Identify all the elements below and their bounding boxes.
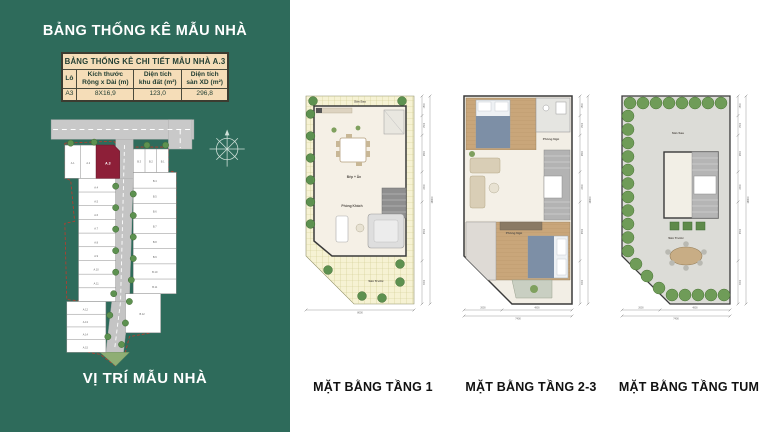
dim-label: 2600	[480, 308, 486, 310]
lot-label: B.11	[152, 286, 158, 289]
spec-table-title: BẢNG THỐNG KÊ CHI TIẾT MẪU NHÀ A.3	[62, 53, 229, 70]
tree-icon	[630, 258, 642, 270]
dimension-side: 15001500280023004500330016900	[421, 95, 434, 306]
dim-label: 4800	[534, 308, 540, 310]
spec-table-header-row: Lô Kích thước Rộng x Dài (m) Diện tích k…	[62, 70, 229, 89]
stairs	[382, 188, 406, 218]
sidebar-title: BẢNG THỐNG KÊ MẪU NHÀ	[43, 23, 247, 39]
tree-icon	[622, 164, 634, 176]
compass-icon	[210, 129, 245, 166]
tree-icon	[113, 183, 119, 189]
room-label-san-truoc: Sân Trước	[668, 236, 684, 240]
tree-icon	[705, 289, 717, 301]
tree-icon	[126, 298, 132, 304]
tree-icon	[324, 266, 333, 275]
lot-label: A.8	[94, 241, 98, 244]
lot-label: B.2	[149, 160, 153, 163]
spec-table-row: A3 8X16,9 123,0 296,8	[62, 89, 229, 101]
plan-2-3-caption: MẶT BẰNG TẦNG 2-3	[465, 380, 596, 394]
floor-plan-tum-drawing: Sân Sau Sân Trước 1500150028002300450033…	[614, 88, 764, 328]
dim-label: 2800	[424, 150, 426, 156]
tree-icon	[715, 97, 727, 109]
tree-icon	[666, 289, 678, 301]
tree-icon	[162, 142, 168, 148]
tree-icon	[306, 220, 315, 229]
tree-icon	[622, 232, 634, 244]
dim-label: 1500	[740, 103, 742, 109]
tree-icon	[91, 139, 97, 145]
tree-icon	[130, 255, 136, 261]
room-label-san-truoc: Sân Trước	[368, 279, 383, 283]
tree-icon	[622, 124, 634, 136]
lot-label: A.7	[94, 227, 98, 230]
dim-total-label: 8000	[357, 311, 363, 314]
tree-icon	[653, 282, 665, 294]
dim-total-label: 16900	[747, 196, 750, 204]
tree-icon	[306, 132, 315, 141]
lot-label: A.15	[83, 346, 89, 349]
tree-icon	[641, 270, 653, 282]
tree-icon	[396, 260, 405, 269]
col-dien-tich-khu-dat: Diện tích khu đất (m²)	[134, 70, 182, 89]
dim-label: 2300	[424, 184, 426, 190]
tree-icon	[650, 97, 662, 109]
tree-icon	[679, 289, 691, 301]
dim-total-label: 16900	[431, 196, 434, 204]
col-kich-thuoc: Kích thước Rộng x Dài (m)	[77, 70, 134, 89]
dim-label: 4800	[692, 308, 698, 310]
dim-label: 3300	[740, 279, 742, 285]
tree-icon	[309, 97, 318, 106]
lot-label: B.10	[152, 271, 158, 274]
dimension-bottom: 260048007400	[463, 308, 574, 321]
lot-label: A.4	[94, 186, 98, 189]
dim-total-label: 7400	[673, 317, 679, 320]
tree-icon	[306, 154, 315, 163]
lot-block-b	[125, 149, 176, 333]
tree-icon	[68, 140, 74, 146]
lot-label: A.13	[83, 321, 89, 324]
bathroom-bottom	[466, 222, 496, 280]
lot-label: B.7	[153, 225, 157, 228]
dim-label: 3300	[424, 279, 426, 285]
tree-icon	[105, 333, 111, 339]
dim-label: 4500	[582, 228, 584, 234]
dim-label: 1500	[582, 122, 584, 128]
dim-total-label: 16900	[589, 196, 592, 204]
dimension-bottom: 8000	[305, 309, 416, 315]
dimension-bottom: 260048007400	[621, 308, 732, 321]
tree-icon	[624, 97, 636, 109]
room-label-phong-khach: Phòng Khách	[341, 204, 362, 208]
lot-label: A.10	[94, 268, 100, 271]
cell-size: 8X16,9	[77, 89, 134, 101]
floor-plan-tum: Sân Sau Sân Trước 1500150028002300450033…	[610, 0, 768, 432]
floor-plan-2-3-drawing: Phòng Ngủ Phòng Ngủ 15001500280023004500…	[456, 88, 606, 328]
tree-icon	[378, 294, 387, 303]
dim-label: 4500	[424, 228, 426, 234]
floor-plan-1: Sân Sau Bếp + Ăn Phòng Khách Sân Trước 1…	[294, 0, 452, 432]
room-label-bep-an: Bếp + Ăn	[347, 174, 361, 179]
dim-label: 3300	[582, 279, 584, 285]
dimension-side: 15001500280023004500330016900	[737, 95, 750, 306]
dim-label: 4500	[740, 228, 742, 234]
lot-label: B.5	[153, 195, 157, 198]
tree-icon	[622, 178, 634, 190]
dim-label: 2600	[638, 308, 644, 310]
lot-label: A.2	[86, 162, 90, 165]
col-lo: Lô	[62, 70, 77, 89]
dim-label: 1500	[424, 122, 426, 128]
lot-label: B.9	[153, 256, 157, 259]
lot-label: A.1	[71, 162, 75, 165]
tree-icon	[718, 289, 730, 301]
tree-icon	[111, 290, 117, 296]
dim-label: 1500	[582, 103, 584, 109]
dim-label: 1500	[424, 103, 426, 109]
cell-lot: A3	[62, 89, 77, 101]
tree-icon	[622, 191, 634, 203]
bed-top	[476, 100, 510, 148]
lot-label-a3: A.3	[105, 161, 111, 165]
room-label-san-sau: Sân Sau	[354, 100, 366, 104]
dim-label: 2300	[740, 184, 742, 190]
tree-icon	[128, 277, 134, 283]
dimension-side: 15001500280023004500330016900	[579, 95, 592, 306]
tree-icon	[113, 269, 119, 275]
dim-label: 2800	[740, 150, 742, 156]
dim-total-label: 7400	[515, 317, 521, 320]
tree-icon	[676, 97, 688, 109]
lot-label: B.1	[161, 160, 165, 163]
floor-plan-2-3: Phòng Ngủ Phòng Ngủ 15001500280023004500…	[452, 0, 610, 432]
bed-bottom	[528, 236, 568, 278]
tree-icon	[122, 320, 128, 326]
cell-land-area: 123,0	[134, 89, 182, 101]
tree-icon	[113, 226, 119, 232]
room-label-san-sau: Sân Sau	[672, 131, 684, 135]
col-dien-tich-san-xd: Diện tích sàn XD (m²)	[181, 70, 228, 89]
lot-label: A.9	[94, 255, 98, 258]
tree-icon	[107, 312, 113, 318]
tree-icon	[130, 212, 136, 218]
lot-label: A.6	[94, 214, 98, 217]
lot-label: A.5	[94, 200, 98, 203]
tree-icon	[622, 205, 634, 217]
lot-label: B.3	[137, 160, 141, 163]
stairs	[544, 150, 570, 220]
tree-icon	[689, 97, 701, 109]
lot-label: B.4	[153, 180, 157, 183]
room-label-phong-ngu-1: Phòng Ngủ	[543, 137, 560, 141]
sidebar: BẢNG THỐNG KÊ MẪU NHÀ BẢNG THỐNG KÊ CHI …	[0, 0, 290, 432]
tree-icon	[130, 234, 136, 240]
lot-label: A.11	[94, 282, 100, 285]
plan-tum-caption: MẶT BẰNG TẦNG TUM	[619, 380, 759, 394]
tree-icon	[113, 204, 119, 210]
site-plan-map: A.1A.2A.3A.4A.5A.6A.7A.8A.9A.10A.11A.12A…	[29, 106, 261, 368]
tree-icon	[663, 97, 675, 109]
tree-icon	[306, 198, 315, 207]
lot-label: B.8	[153, 241, 157, 244]
tree-icon	[358, 292, 367, 301]
tree-icon	[622, 218, 634, 230]
room-label-phong-ngu-2: Phòng Ngủ	[506, 231, 523, 235]
dining-table	[340, 138, 366, 162]
lot-label: B.6	[153, 210, 157, 213]
tree-icon	[702, 97, 714, 109]
dim-label: 2800	[582, 150, 584, 156]
sidebar-caption: VỊ TRÍ MẪU NHÀ	[83, 370, 208, 387]
tree-icon	[396, 278, 405, 287]
stair-box	[664, 152, 718, 218]
lot-label: A.14	[83, 333, 89, 336]
floor-plans-area: Sân Sau Bếp + Ăn Phòng Khách Sân Trước 1…	[290, 0, 768, 432]
tree-icon	[622, 110, 634, 122]
spec-table: BẢNG THỐNG KÊ CHI TIẾT MẪU NHÀ A.3 Lô Kí…	[61, 52, 230, 102]
tree-icon	[692, 289, 704, 301]
tree-icon	[130, 191, 136, 197]
lot-label: B.12	[139, 313, 145, 316]
tree-icon	[622, 245, 634, 257]
dim-label: 1500	[740, 122, 742, 128]
tree-icon	[637, 97, 649, 109]
tree-icon	[113, 247, 119, 253]
tree-icon	[306, 176, 315, 185]
plan-1-caption: MẶT BẰNG TẦNG 1	[313, 380, 433, 394]
floor-plan-1-drawing: Sân Sau Bếp + Ăn Phòng Khách Sân Trước 1…	[298, 88, 448, 328]
tree-icon	[622, 137, 634, 149]
cell-floor-area: 296,8	[181, 89, 228, 101]
tree-icon	[118, 341, 124, 347]
lot-label: A.12	[83, 308, 89, 311]
dim-label: 2300	[582, 184, 584, 190]
tree-icon	[306, 110, 315, 119]
tree-icon	[622, 151, 634, 163]
page: BẢNG THỐNG KÊ MẪU NHÀ BẢNG THỐNG KÊ CHI …	[0, 0, 768, 432]
tree-icon	[144, 142, 150, 148]
tree-icon	[398, 97, 407, 106]
